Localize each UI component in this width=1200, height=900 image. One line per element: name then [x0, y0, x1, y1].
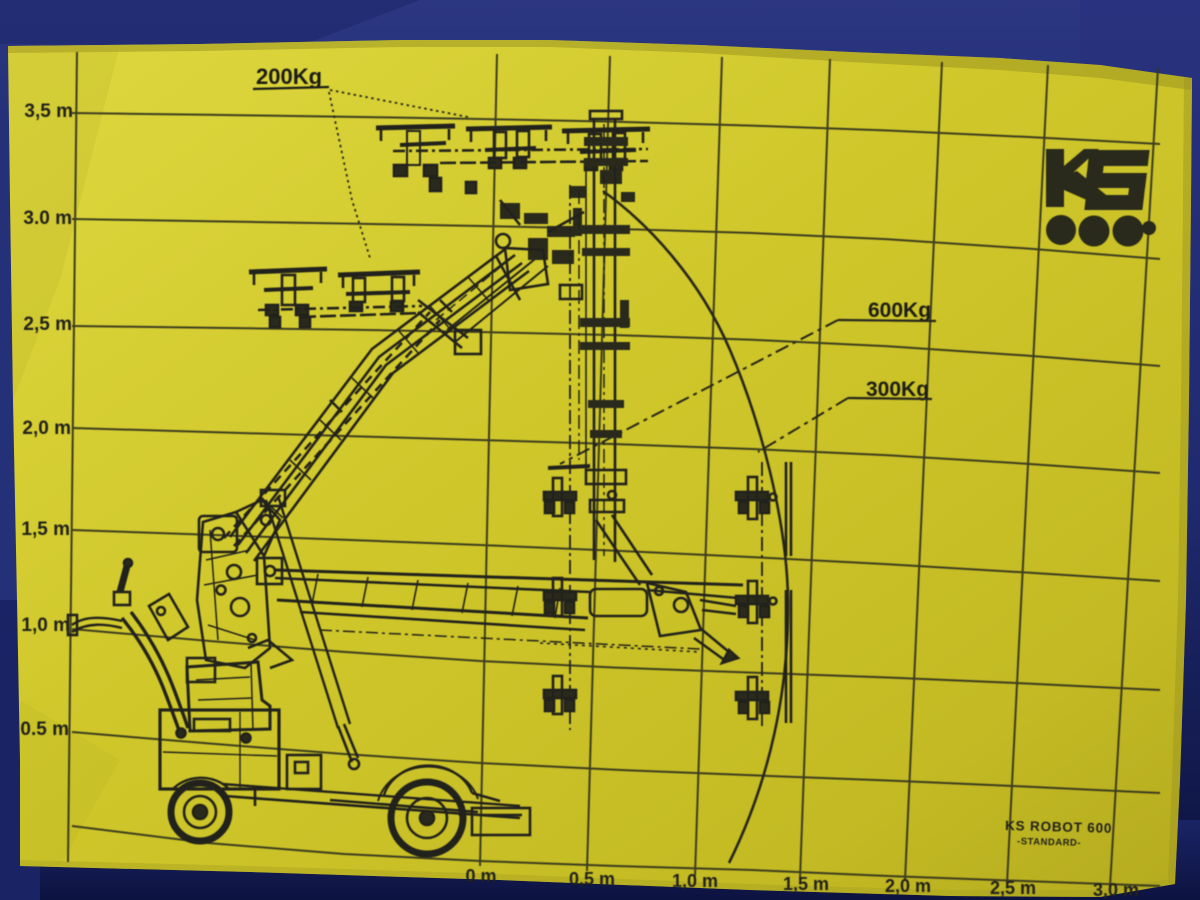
svg-text:2,0 m: 2,0 m [885, 876, 931, 896]
svg-text:KS ROBOT 600: KS ROBOT 600 [1005, 818, 1112, 836]
svg-text:1,5 m: 1,5 m [783, 874, 829, 894]
svg-text:0,5 m: 0,5 m [569, 869, 615, 889]
svg-text:0.5 m: 0.5 m [20, 719, 69, 740]
svg-text:-STANDARD-: -STANDARD- [1017, 836, 1081, 849]
svg-text:2,0 m: 2,0 m [22, 418, 71, 439]
svg-text:600Kg: 600Kg [868, 299, 931, 322]
svg-text:0 m: 0 m [465, 866, 496, 886]
svg-text:3.0 m: 3.0 m [23, 208, 72, 229]
svg-text:1,0 m: 1,0 m [672, 871, 718, 891]
svg-text:3,5 m: 3,5 m [24, 101, 73, 122]
svg-text:2,5 m: 2,5 m [990, 878, 1036, 898]
svg-text:1,0 m: 1,0 m [21, 615, 70, 636]
svg-text:200Kg: 200Kg [256, 64, 322, 89]
svg-text:2,5 m: 2,5 m [23, 314, 72, 335]
svg-text:3,0 m: 3,0 m [1093, 880, 1139, 900]
svg-text:1,5 m: 1,5 m [21, 519, 70, 540]
